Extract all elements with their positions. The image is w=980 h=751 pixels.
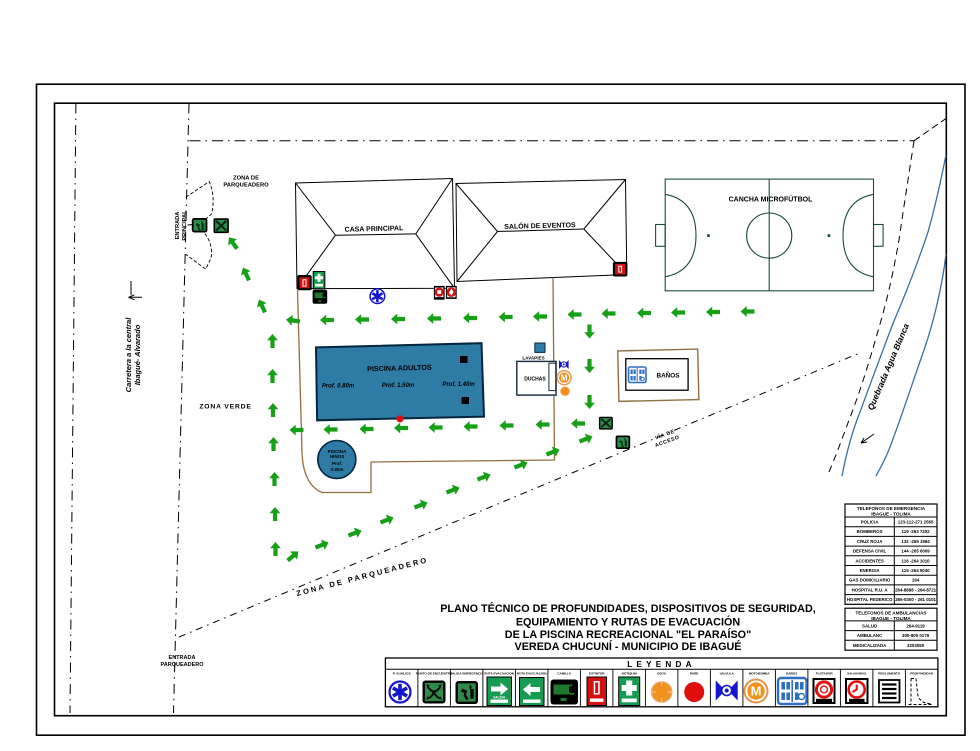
svg-text:RUTA EVACUACION: RUTA EVACUACION [517,672,547,676]
svg-text:Prof. 1.50m: Prof. 1.50m [382,383,415,389]
svg-text:BOMBEROS: BOMBEROS [857,529,883,534]
svg-text:300-800 0179: 300-800 0179 [902,633,930,638]
svg-text:264-9119: 264-9119 [906,623,925,628]
svg-text:LAVAPIES: LAVAPIES [522,355,544,360]
svg-text:BOTIQUIN: BOTIQUIN [622,672,638,676]
svg-text:M: M [561,374,568,383]
svg-text:CANCHA MICROFÚTBOL: CANCHA MICROFÚTBOL [729,195,813,204]
svg-text:BAÑOS: BAÑOS [786,671,797,676]
svg-text:PARQUEADERO: PARQUEADERO [223,183,269,189]
svg-text:EQUIPAMIENTO Y RUTAS DE EVACUA: EQUIPAMIENTO Y RUTAS DE EVACUACIÓN [516,616,741,629]
svg-text:PISCINA ADULTOS: PISCINA ADULTOS [367,363,432,374]
svg-text:119 -263 7202: 119 -263 7202 [902,529,931,534]
svg-text:CASA PRINCIPAL: CASA PRINCIPAL [345,225,405,234]
svg-text:SALIDA: SALIDA [493,696,506,700]
svg-text:M: M [751,684,762,699]
svg-text:0.60m: 0.60m [330,467,343,472]
svg-text:144 -265 6009: 144 -265 6009 [901,549,930,554]
svg-text:GAS DOMICILIARIO: GAS DOMICILIARIO [849,578,891,583]
svg-text:MEDICALIZADA: MEDICALIZADA [853,643,887,648]
svg-text:ZONA DE: ZONA DE [233,176,259,182]
svg-text:IBAGUE - TOLIMA: IBAGUE - TOLIMA [871,616,911,621]
svg-text:PRINCIPAL: PRINCIPAL [182,210,188,241]
svg-text:P. AUXILIOS: P. AUXILIOS [393,672,411,676]
svg-text:LEYENDA: LEYENDA [627,660,696,669]
svg-text:DEFENSA CIVIL: DEFENSA CIVIL [853,549,887,554]
svg-text:ENTRADA: ENTRADA [175,212,181,240]
svg-text:Ibagué- Alvarado: Ibagué- Alvarado [133,324,142,385]
svg-text:ZONA DE PARQUEADERO: ZONA DE PARQUEADERO [295,555,429,598]
svg-text:164: 164 [912,578,920,583]
svg-text:116 -264 1010: 116 -264 1010 [902,558,931,563]
svg-text:TELEFONOS DE AMBULANCIAS: TELEFONOS DE AMBULANCIAS [855,610,926,615]
svg-text:PARQUEADERO: PARQUEADERO [161,662,205,668]
svg-text:IBAGUE - TOLIMA: IBAGUE - TOLIMA [871,512,911,517]
svg-text:Prof. 0.80m: Prof. 0.80m [322,384,355,390]
svg-text:POLICIA: POLICIA [861,520,880,525]
svg-text:BOYA: BOYA [657,672,666,676]
svg-text:SALVAVIDAS: SALVAVIDAS [847,672,866,676]
svg-text:RUTA EVACUACION: RUTA EVACUACION [484,672,514,676]
svg-text:REGLAMENTO: REGLAMENTO [878,672,901,676]
svg-text:TELEFONOS DE EMERGENCIA: TELEFONOS DE EMERGENCIA [857,506,926,511]
svg-text:DUCHAS: DUCHAS [524,377,546,383]
svg-text:ENERGIA: ENERGIA [860,568,881,573]
svg-text:NIÑOS: NIÑOS [330,453,345,459]
svg-text:PUNTO DE ENCUENTRO: PUNTO DE ENCUENTRO [416,672,453,676]
svg-text:264-8888 - 264-8721: 264-8888 - 264-8721 [895,587,937,592]
svg-text:PARE: PARE [690,672,698,676]
svg-text:HOSPITAL FEDERICO: HOSPITAL FEDERICO [847,597,893,602]
svg-text:ZONA VERDE: ZONA VERDE [199,404,251,411]
svg-text:Prof. 1.40m: Prof. 1.40m [442,382,475,388]
svg-text:132 -265 1984: 132 -265 1984 [901,539,930,544]
svg-text:Carretera a la central: Carretera a la central [124,317,133,393]
svg-text:DE LA PISCINA RECREACIONAL "EL: DE LA PISCINA RECREACIONAL "EL PARAÍSO" [505,628,751,641]
svg-text:PLANO TÉCNICO DE PROFUNDIDADES: PLANO TÉCNICO DE PROFUNDIDADES, DISPOSIT… [440,602,816,615]
svg-text:PROFUNDIDAD: PROFUNDIDAD [910,672,934,676]
svg-text:SALÓN DE EVENTOS: SALÓN DE EVENTOS [504,220,576,231]
svg-text:ACCIDENTES: ACCIDENTES [855,558,884,563]
svg-text:FLOTADOR: FLOTADOR [816,672,834,676]
svg-text:HOSPITAL R.U. A: HOSPITAL R.U. A [852,587,889,592]
svg-text:EXTINTOR: EXTINTOR [589,672,605,676]
svg-text:265-0300 - 261 0101: 265-0300 - 261 0101 [895,597,936,602]
svg-text:MOTOBOMBA: MOTOBOMBA [749,672,771,676]
svg-text:SALIDA EMERGENCIA: SALIDA EMERGENCIA [450,672,484,676]
svg-text:SALUD: SALUD [862,623,877,628]
svg-text:ENTRADA: ENTRADA [169,655,196,661]
svg-text:AMBULANC: AMBULANC [857,633,883,638]
svg-text:3203050: 3203050 [907,643,925,648]
svg-text:115 -264 5040: 115 -264 5040 [902,568,931,573]
svg-text:VALVULA: VALVULA [720,672,735,676]
svg-text:CAMILLA: CAMILLA [557,672,572,676]
svg-text:VEREDA CHUCUNÍ - MUNICIPIO DE: VEREDA CHUCUNÍ - MUNICIPIO DE IBAGUÉ [515,640,742,653]
svg-text:Prof.: Prof. [332,461,342,466]
svg-text:CRUZ ROJA: CRUZ ROJA [857,539,883,544]
svg-text:123-112-271 2565: 123-112-271 2565 [898,520,934,525]
svg-text:BAÑOS: BAÑOS [656,371,680,380]
